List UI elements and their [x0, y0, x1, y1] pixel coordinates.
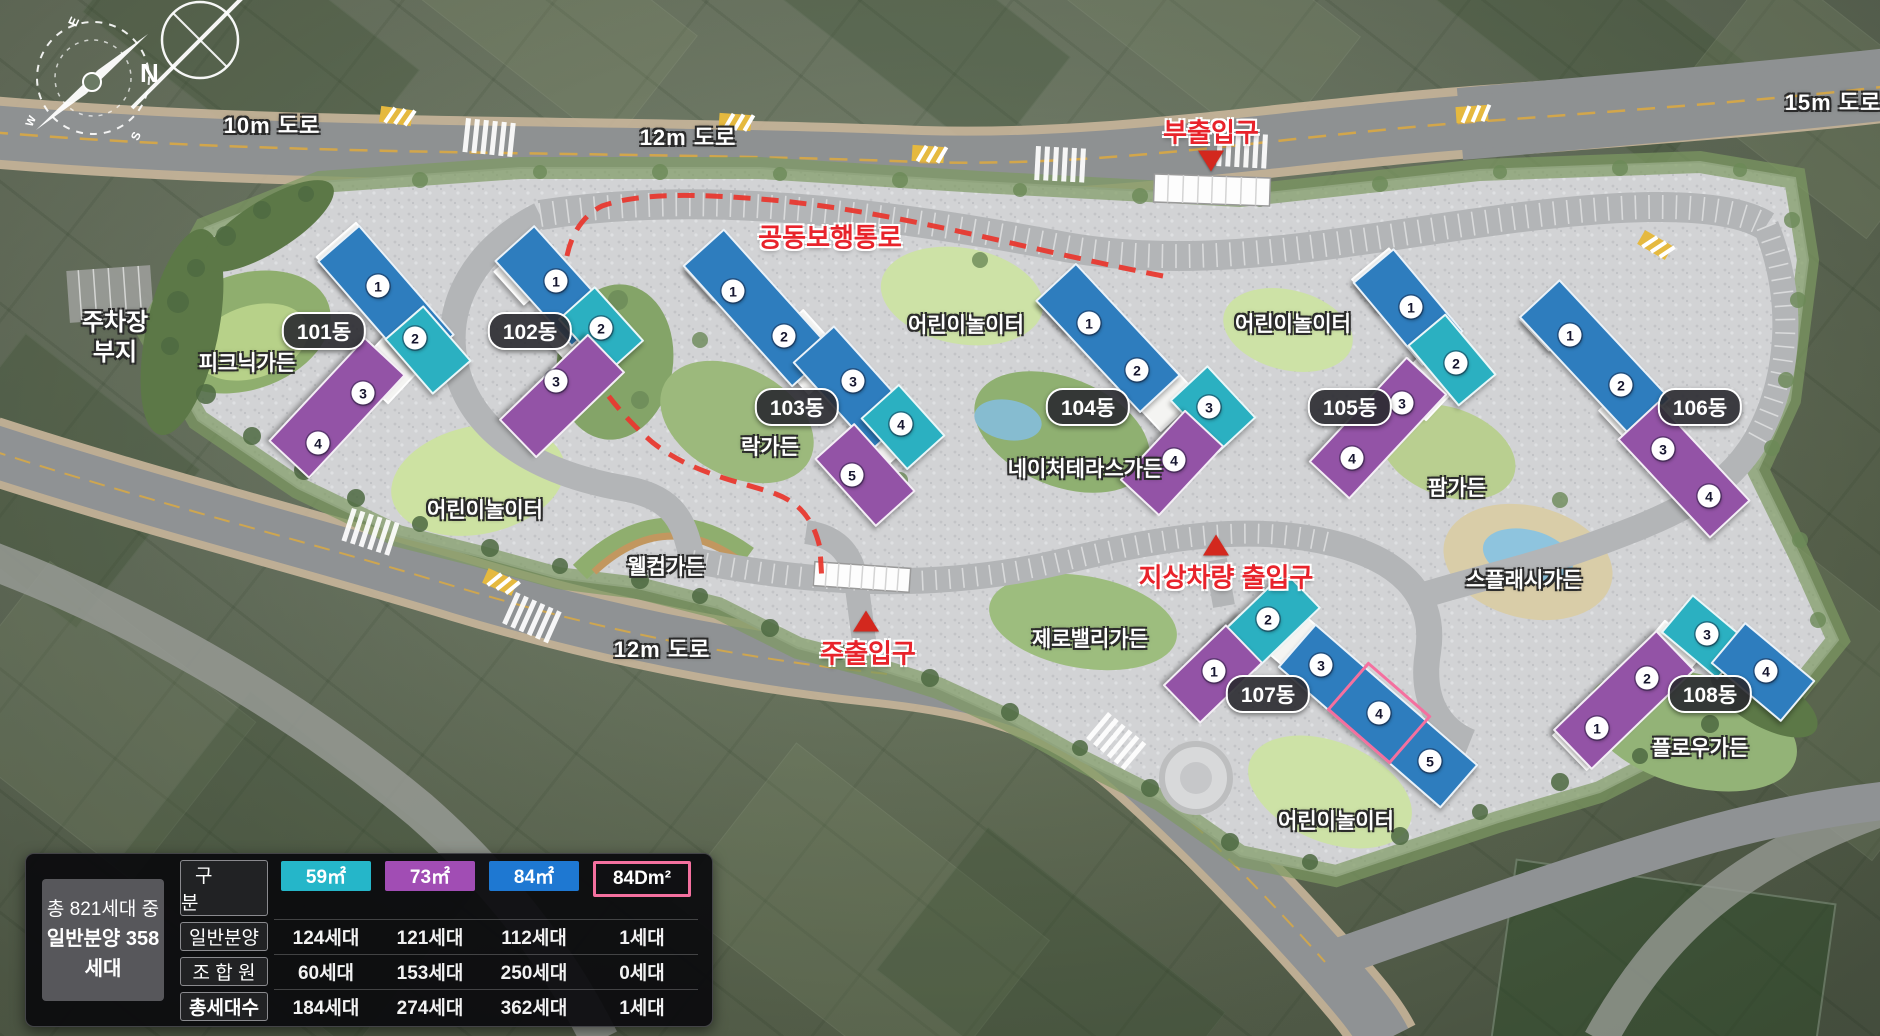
- legend-type-chip: 73㎡: [385, 861, 475, 891]
- unit-number-badge: 4: [1755, 660, 1778, 683]
- unit-number-badge: 2: [773, 325, 796, 348]
- building-name-pill: 108동: [1668, 675, 1752, 713]
- unit-number-badge: 4: [1163, 449, 1186, 472]
- entrance-label: 부출입구: [1163, 113, 1259, 150]
- building-name-pill: 106동: [1658, 388, 1742, 426]
- road-label: 12m 도로: [614, 632, 711, 664]
- unit-number-badge: 4: [1698, 485, 1721, 508]
- unit-number-badge: 2: [1636, 667, 1659, 690]
- entrance-triangle-icon: [1198, 151, 1224, 172]
- legend-row-label: 총세대수: [180, 992, 268, 1021]
- garden-label: 네이처테라스가든: [1008, 453, 1163, 483]
- unit-number-badge: 1: [1078, 312, 1101, 335]
- legend-value: 250세대: [482, 954, 586, 989]
- garden-label: 웰컴가든: [627, 551, 704, 581]
- unit-number-badge: 1: [367, 275, 390, 298]
- summary-line1: 총 821세대 중: [47, 896, 159, 925]
- unit-number-badge: 1: [1559, 324, 1582, 347]
- legend-value: 60세대: [274, 954, 378, 989]
- legend-value: 362세대: [482, 989, 586, 1024]
- unit-number-badge: 3: [1198, 396, 1221, 419]
- legend-value: 274세대: [378, 989, 482, 1024]
- building-name-pill: 102동: [488, 312, 572, 350]
- pedestrian-route-label: 공동보행통로: [758, 218, 902, 255]
- unit-number-badge: 2: [1126, 359, 1149, 382]
- road-label: 15m 도로: [1785, 85, 1880, 117]
- garden-label: 어린이놀이터: [427, 494, 543, 524]
- garden-label: 어린이놀이터: [1235, 308, 1351, 338]
- unit-number-badge: 3: [545, 370, 568, 393]
- unit-number-badge: 5: [841, 464, 864, 487]
- summary-line2: 일반분양 358세대: [42, 924, 164, 984]
- unit-number-badge: 4: [1341, 447, 1364, 470]
- legend-row-label: 일반분양: [180, 922, 268, 951]
- unit-number-badge: 4: [1368, 702, 1391, 725]
- unit-number-badge: 3: [842, 370, 865, 393]
- unit-number-badge: 1: [1586, 717, 1609, 740]
- garden-label: 제로밸리가든: [1032, 623, 1148, 653]
- unit-number-badge: 2: [1445, 352, 1468, 375]
- compass-e: E: [65, 14, 82, 28]
- unit-number-badge: 4: [307, 432, 330, 455]
- site-plan-scene: N E S W 총 821세대 중 일반분양 358세대 구 분59㎡73㎡84…: [0, 0, 1880, 1036]
- legend-value: 1세대: [586, 989, 698, 1024]
- garden-label: 스플래시가든: [1466, 564, 1582, 594]
- legend-value: 153세대: [378, 954, 482, 989]
- legend-value: 124세대: [274, 919, 378, 954]
- compass-w: W: [24, 114, 40, 129]
- garden-label: 팜가든: [1428, 472, 1486, 502]
- building-name-pill: 101동: [282, 312, 366, 350]
- unit-number-badge: 1: [1400, 296, 1423, 319]
- garden-label: 락가든: [741, 431, 799, 461]
- building-name-pill: 105동: [1308, 388, 1392, 426]
- legend-table: 총 821세대 중 일반분양 358세대 구 분59㎡73㎡84㎡84Dm²일반…: [25, 853, 713, 1027]
- site-label: 주차장 부지: [82, 308, 148, 368]
- unit-number-badge: 5: [1419, 750, 1442, 773]
- legend-value: 1세대: [586, 919, 698, 954]
- compass: N E S W: [18, 0, 298, 160]
- unit-number-badge: 2: [1257, 608, 1280, 631]
- legend-value: 121세대: [378, 919, 482, 954]
- unit-number-badge: 2: [590, 317, 613, 340]
- garden-label: 어린이놀이터: [1278, 805, 1394, 835]
- unit-number-badge: 1: [722, 280, 745, 303]
- building-name-pill: 107동: [1226, 675, 1310, 713]
- unit-number-badge: 3: [1696, 623, 1719, 646]
- legend-summary: 총 821세대 중 일반분양 358세대: [42, 879, 164, 1001]
- unit-number-badge: 2: [404, 327, 427, 350]
- building-name-pill: 103동: [755, 388, 839, 426]
- sub-entrance-gate: [1154, 174, 1271, 206]
- entrance-triangle-icon: [853, 611, 879, 632]
- legend-row-label: 조 합 원: [180, 957, 268, 986]
- unit-number-badge: 3: [1391, 392, 1414, 415]
- building-name-pill: 104동: [1046, 388, 1130, 426]
- garden-label: 어린이놀이터: [908, 309, 1024, 339]
- garden-label: 피크닉가든: [199, 347, 296, 377]
- legend-type-chip: 59㎡: [281, 861, 371, 891]
- entrance-label: 주출입구: [820, 634, 916, 671]
- legend-col-header: 구 분: [180, 860, 268, 916]
- unit-number-badge: 3: [1310, 654, 1333, 677]
- unit-number-badge: 3: [352, 382, 375, 405]
- unit-number-badge: 2: [1610, 374, 1633, 397]
- unit-number-badge: 4: [890, 413, 913, 436]
- compass-s: S: [128, 129, 144, 142]
- unit-number-badge: 3: [1652, 438, 1675, 461]
- entrance-triangle-icon: [1203, 535, 1229, 556]
- legend-value: 112세대: [482, 919, 586, 954]
- legend-value: 184세대: [274, 989, 378, 1024]
- legend-value: 0세대: [586, 954, 698, 989]
- road-label: 12m 도로: [640, 120, 737, 152]
- garden-label: 플로우가든: [1652, 732, 1749, 762]
- unit-number-badge: 1: [1203, 660, 1226, 683]
- legend-grid: 구 분59㎡73㎡84㎡84Dm²일반분양124세대121세대112세대1세대조…: [174, 857, 698, 1024]
- unit-number-badge: 1: [545, 270, 568, 293]
- legend-type-chip: 84㎡: [489, 861, 579, 891]
- entrance-label: 지상차량 출입구: [1139, 558, 1314, 595]
- legend-type-chip: 84Dm²: [593, 861, 691, 897]
